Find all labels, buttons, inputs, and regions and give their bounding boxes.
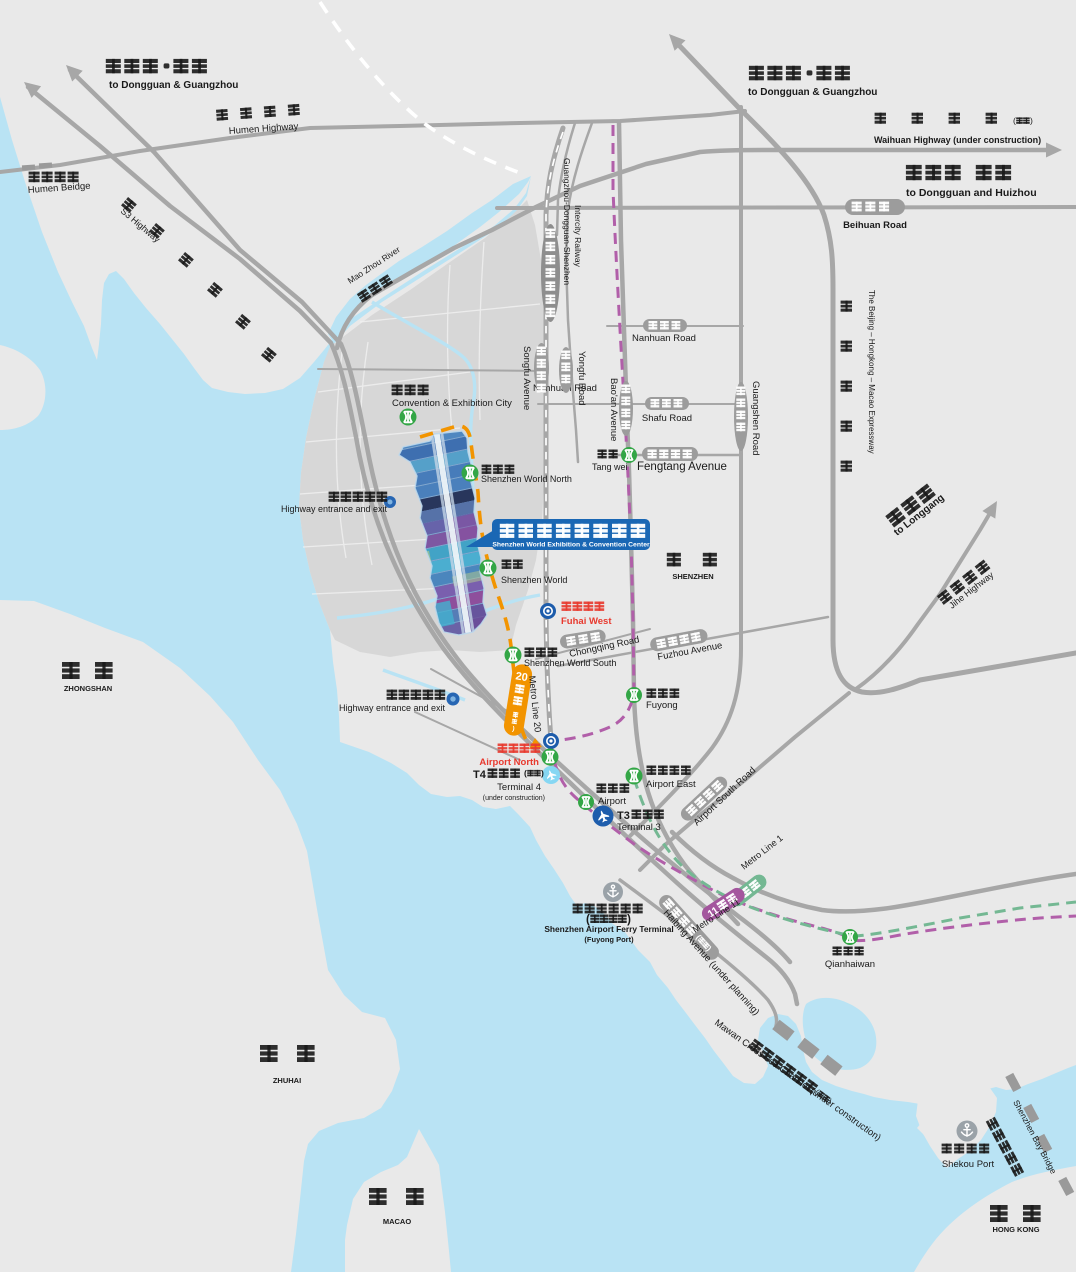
svg-text:SHENZHEN: SHENZHEN (672, 572, 713, 581)
svg-text:HONG KONG: HONG KONG (992, 1225, 1039, 1234)
svg-text:Intercity Railway: Intercity Railway (573, 205, 583, 268)
svg-text:Terminal 3: Terminal 3 (617, 822, 661, 833)
svg-text:Airport North: Airport North (479, 757, 539, 768)
svg-text:Fuyong: Fuyong (646, 700, 678, 711)
svg-text:Highway entrance and exit: Highway entrance and exit (339, 703, 446, 713)
svg-text:): ) (1030, 116, 1033, 126)
svg-text:to Dongguan & Guangzhou: to Dongguan & Guangzhou (109, 80, 238, 91)
svg-text:(: ( (1013, 116, 1016, 126)
svg-text:T3: T3 (617, 810, 630, 822)
svg-text:T4: T4 (473, 769, 487, 781)
svg-text:Highway entrance and exit: Highway entrance and exit (281, 504, 388, 514)
svg-text:Qianhaiwan: Qianhaiwan (825, 959, 875, 970)
svg-text:20: 20 (515, 670, 529, 684)
svg-text:Bao'an Avenue: Bao'an Avenue (608, 378, 619, 441)
svg-text:Waihuan Highway (under constru: Waihuan Highway (under construction) (874, 135, 1041, 145)
svg-text:Guangshen Road: Guangshen Road (750, 381, 761, 455)
svg-text:(under construction): (under construction) (483, 795, 545, 802)
svg-text:ZHONGSHAN: ZHONGSHAN (64, 684, 112, 693)
svg-text:Terminal 4: Terminal 4 (497, 782, 541, 793)
svg-text:Tang wei: Tang wei (592, 462, 628, 472)
svg-text:(: ( (524, 768, 527, 778)
svg-text:MACAO: MACAO (383, 1217, 411, 1226)
svg-text:Airport: Airport (598, 796, 626, 807)
svg-text:): ) (541, 768, 544, 778)
svg-text:Yongfu Road: Yongfu Road (576, 351, 587, 406)
svg-text:Shenzhen World Exhibition & Co: Shenzhen World Exhibition & Convention C… (492, 542, 650, 549)
svg-text:Shekou Port: Shekou Port (942, 1159, 995, 1170)
svg-text:to Dongguan and Huizhou: to Dongguan and Huizhou (906, 187, 1037, 199)
svg-text:The Beijing – Hongkong – Macao: The Beijing – Hongkong – Macao Expresswa… (867, 290, 876, 454)
svg-text:Airport East: Airport East (646, 779, 696, 790)
svg-text:ZHUHAI: ZHUHAI (273, 1076, 301, 1085)
svg-text:Guangzhou-Dongguan-Shenzhen: Guangzhou-Dongguan-Shenzhen (562, 158, 572, 285)
svg-text:Shenzhen Airport Ferry Termina: Shenzhen Airport Ferry Terminal (544, 924, 673, 934)
svg-text:Beihuan Road: Beihuan Road (843, 220, 907, 231)
svg-text:Fengtang Avenue: Fengtang Avenue (637, 461, 727, 473)
svg-text:Shenzhen World North: Shenzhen World North (481, 474, 572, 484)
svg-text:Shenzhen World South: Shenzhen World South (524, 658, 616, 668)
svg-text:Convention & Exhibition City: Convention & Exhibition City (392, 398, 512, 409)
svg-text:Nanhuan Road: Nanhuan Road (632, 333, 696, 344)
svg-text:(Fuyong Port): (Fuyong Port) (584, 935, 634, 944)
svg-text:Shafu Road: Shafu Road (642, 413, 692, 424)
svg-text:Shenzhen World: Shenzhen World (501, 575, 567, 585)
svg-text:to Dongguan & Guangzhou: to Dongguan & Guangzhou (748, 87, 877, 98)
svg-text:Fuhai West: Fuhai West (561, 616, 612, 627)
svg-text:Songfu Avenue: Songfu Avenue (521, 346, 532, 410)
